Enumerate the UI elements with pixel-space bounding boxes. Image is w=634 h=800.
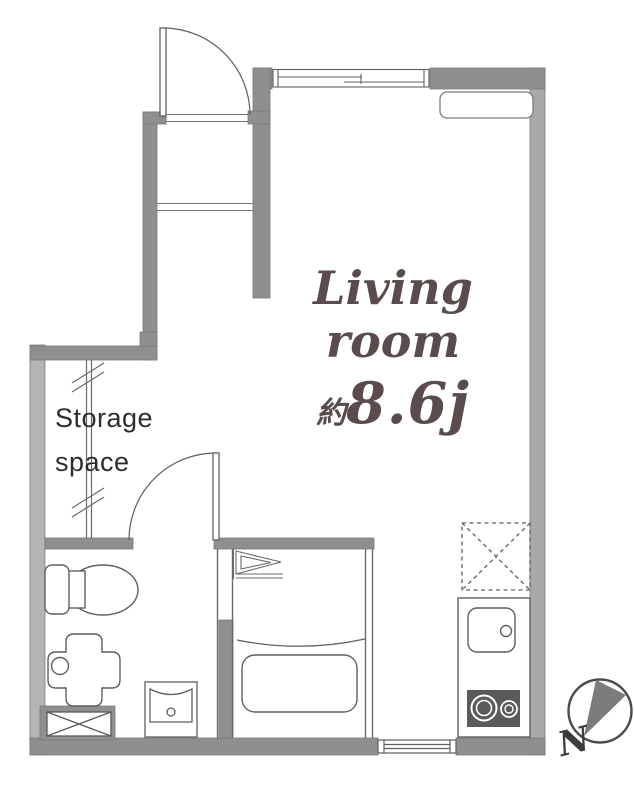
wall-storage-top (30, 346, 157, 360)
entrance-door (160, 28, 250, 116)
living-room-area: 約8.6j (268, 374, 518, 448)
wall-bottom-a (30, 738, 378, 755)
wall-bath-divider-fill (219, 620, 233, 738)
bathroom-folding-door (234, 549, 284, 579)
wall-bathroom-top (214, 538, 374, 549)
floor-plan-page: { "floorplan": { "living_room": { "line1… (0, 0, 634, 800)
wall-bottom-b (456, 738, 545, 755)
refrigerator-space (462, 523, 530, 590)
living-room-area-value: 8.6j (346, 370, 470, 437)
entrance-threshold (166, 115, 248, 122)
living-room-label: Living room 約8.6j (268, 262, 518, 448)
wall-entry-stub-right (248, 111, 270, 124)
gas-stove (467, 690, 520, 727)
service-window (378, 740, 456, 753)
storage-label-line2: space (55, 440, 175, 484)
wall-storage-step (140, 332, 157, 346)
washbasin (145, 682, 197, 737)
toilet (45, 565, 138, 615)
living-room-area-prefix: 約 (316, 396, 346, 431)
washing-machine-pan (47, 712, 111, 736)
storage-space-label: Storage space (55, 396, 175, 484)
bathtub (237, 639, 365, 712)
wall-left-outer (30, 345, 45, 755)
entry-step (157, 204, 253, 211)
wall-washroom-top (45, 538, 133, 549)
storage-label-line1: Storage (55, 396, 175, 440)
living-room-name-line1: Living (268, 262, 518, 315)
living-room-name-line2: room (268, 315, 518, 368)
utility-basin (48, 634, 120, 706)
wall-corridor-left (143, 112, 157, 360)
wall-top-right (430, 68, 545, 89)
air-conditioner (440, 92, 533, 118)
wall-right-outer (530, 68, 545, 755)
sliding-window (273, 70, 429, 88)
